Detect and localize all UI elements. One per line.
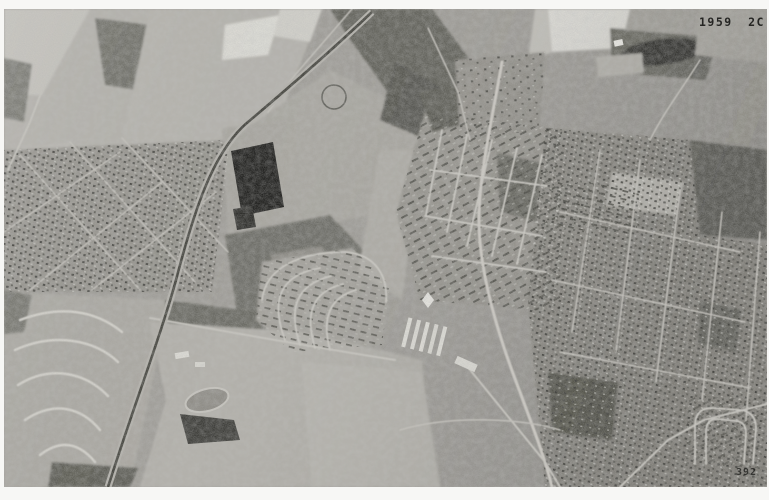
film-grain (4, 9, 767, 487)
aerial-photo: 1959 2C 392 392 (0, 0, 769, 500)
photo-id-stamp: 1959 2C 392 (699, 15, 769, 29)
frame-number-stamp: 392 (736, 467, 757, 478)
scanned-aerial-photo-sheet: 1959 2C 392 392 (0, 0, 769, 500)
photo-emulsion (4, 9, 767, 487)
